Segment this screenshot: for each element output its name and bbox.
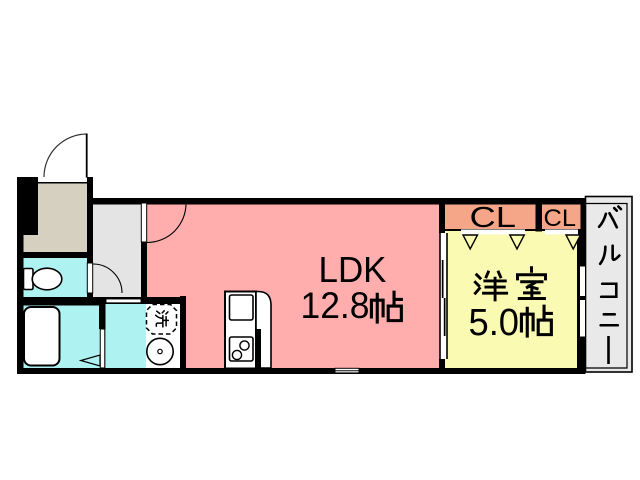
svg-text:CL: CL: [470, 202, 517, 234]
svg-text:LDK: LDK: [319, 249, 387, 290]
svg-text:5.0: 5.0: [469, 302, 520, 344]
svg-text:12.8: 12.8: [301, 285, 370, 326]
svg-text:CL: CL: [544, 205, 577, 232]
